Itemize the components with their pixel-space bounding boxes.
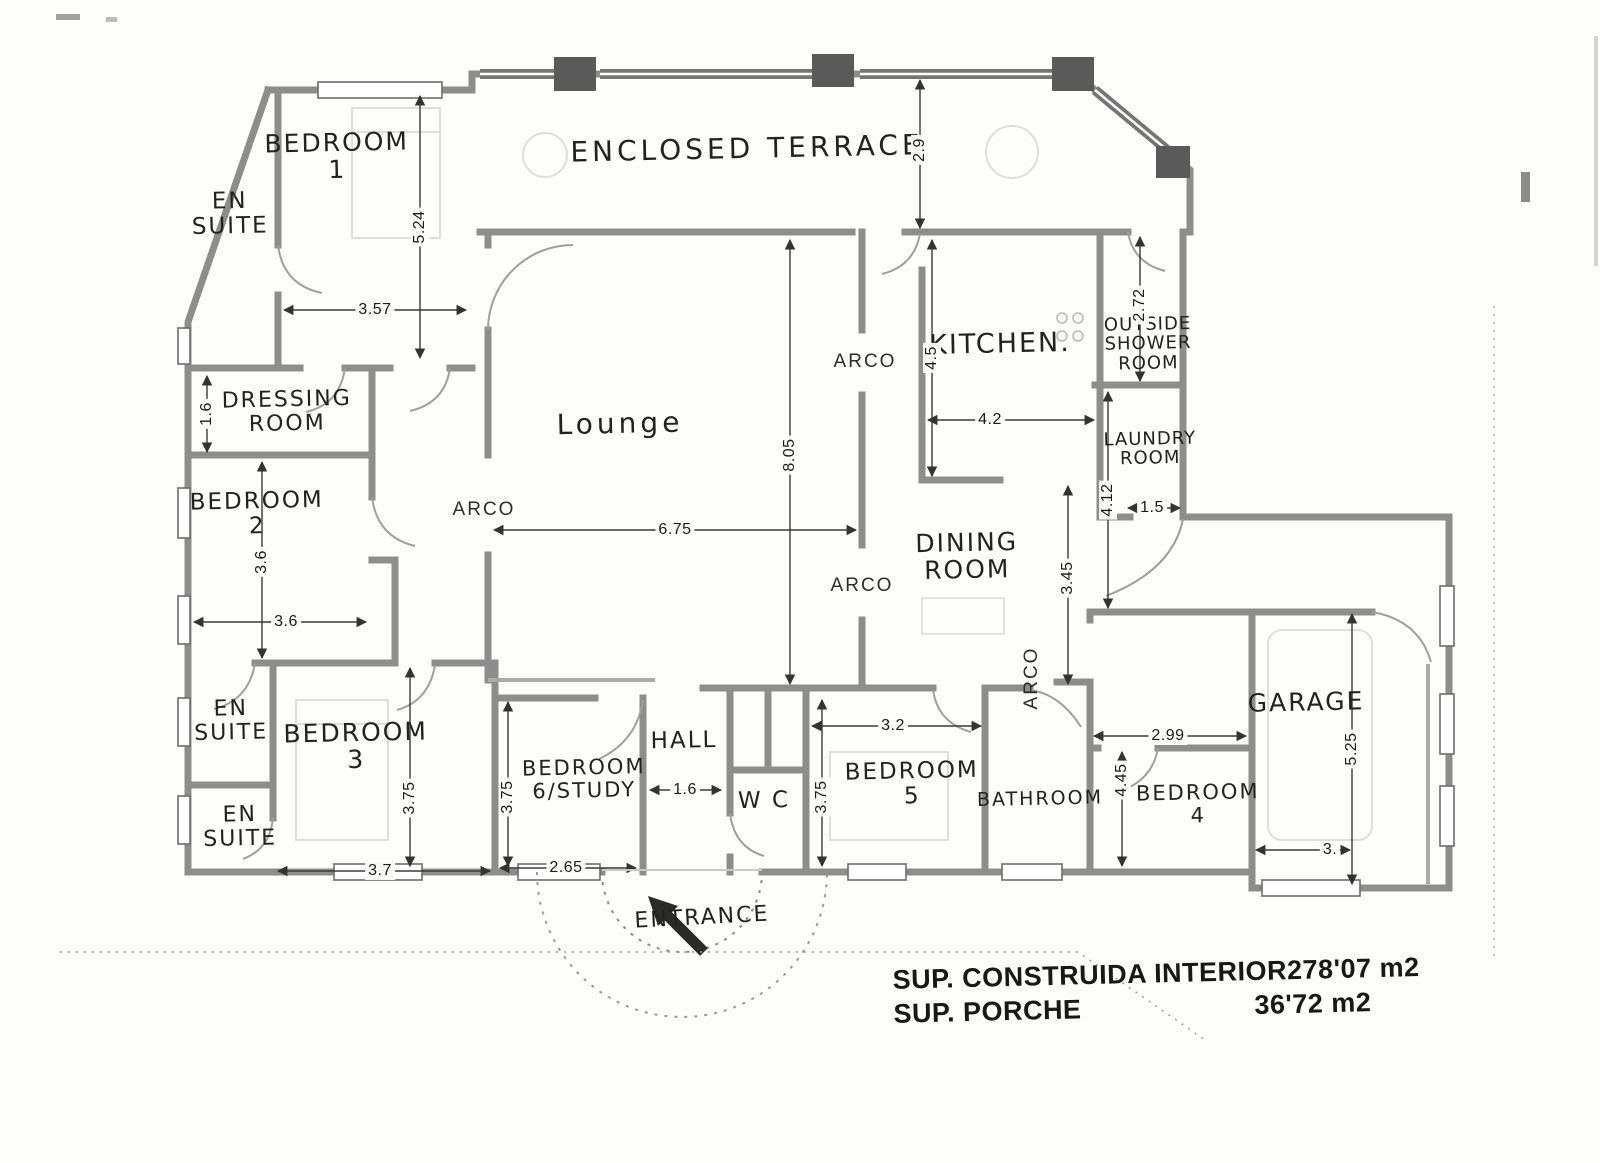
area-summary-value: 36'72 m2 — [1254, 986, 1372, 1023]
room-label-bedroom-4: BEDROOM 4 — [1136, 780, 1261, 828]
room-label-line: BEDROOM — [844, 758, 979, 786]
room-label-line: BEDROOM — [1136, 780, 1260, 805]
room-label-line: ENCLOSED TERRACE — [570, 130, 924, 168]
room-label-line: BEDROOM — [264, 127, 409, 157]
room-label-line: SUITE — [192, 213, 269, 239]
area-summary-value: 278'07 m2 — [1287, 951, 1420, 988]
dim-garage-width: 3. — [1320, 841, 1340, 859]
room-label-bedroom-3: BEDROOM 3 — [283, 717, 429, 774]
dim-kitchen-height: 4.5 — [923, 343, 941, 373]
room-label-line: Lounge — [556, 408, 683, 441]
dim-garage-height: 5.25 — [1343, 729, 1361, 768]
room-label-dressing-room: DRESSING ROOM — [221, 387, 352, 437]
room-label-en-suite-bottom: EN SUITE — [203, 802, 278, 851]
area-summary: SUP. CONSTRUIDA INTERIOR 278'07 m2 SUP. … — [892, 952, 1372, 1031]
dim-laundry-height: 4.12 — [1099, 480, 1117, 519]
room-label-line: 1 — [265, 154, 410, 184]
dim-bedroom3-width: 3.7 — [365, 862, 395, 880]
room-label-line: LAUNDRY — [1103, 429, 1196, 450]
room-label-line: ROOM — [222, 411, 353, 437]
dim-dining-height: 3.45 — [1059, 558, 1077, 597]
dim-bedroom6-width: 2.65 — [546, 859, 585, 877]
room-label-bedroom-6-study: BEDROOM 6/STUDY — [522, 755, 647, 803]
dim-hall-width: 1.6 — [670, 781, 700, 799]
dim-bedroom4-height: 4.45 — [1113, 760, 1131, 799]
room-label-line: GARAGE — [1247, 687, 1364, 716]
arch-label-lounge-dining: ARCO — [831, 575, 894, 597]
arch-label-corridor: ARCO — [453, 499, 516, 521]
area-summary-label: SUP. PORCHE — [893, 993, 1082, 1031]
room-label-en-suite-mid: EN SUITE — [194, 696, 269, 745]
room-label-bedroom-2: BEDROOM 2 — [189, 488, 324, 540]
room-label-line: SHOWER — [1104, 333, 1192, 354]
room-label-bathroom: BATHROOM — [977, 787, 1103, 810]
room-label-line: 6/STUDY — [522, 778, 646, 803]
room-label-bedroom-5: BEDROOM 5 — [844, 758, 979, 810]
arch-label-dining-lobby: ARCO — [1021, 647, 1043, 710]
entrance-porch — [537, 870, 827, 1017]
furniture-sketches — [296, 108, 1372, 840]
room-label-hall: HALL — [650, 728, 717, 754]
room-label-line: EN — [194, 696, 268, 721]
room-label-line: 2 — [190, 513, 325, 541]
room-label-garage: GARAGE — [1247, 687, 1364, 716]
dim-bedroom1-height: 5.24 — [411, 207, 429, 246]
room-label-line: KITCHEN. — [929, 328, 1071, 360]
room-label-enclosed-terrace: ENCLOSED TERRACE — [570, 130, 924, 168]
room-label-line: ROOM — [916, 555, 1019, 584]
room-label-kitchen: KITCHEN. — [929, 328, 1071, 360]
dim-bedroom5-width: 3.2 — [878, 717, 908, 735]
room-label-line: SUITE — [203, 826, 277, 851]
room-label-line: DRESSING — [221, 387, 352, 413]
room-label-wc: W C — [738, 788, 791, 814]
room-label-line: BEDROOM — [283, 717, 428, 747]
room-label-line: EN — [203, 802, 277, 827]
room-label-bedroom-1: BEDROOM 1 — [264, 127, 410, 184]
room-label-line: 4 — [1136, 803, 1260, 828]
dim-dressing-height: 1.6 — [198, 399, 216, 429]
dim-bedroom1-width: 3.57 — [355, 301, 394, 319]
room-label-en-suite-top: EN SUITE — [191, 188, 269, 239]
room-label-lounge: Lounge — [556, 408, 683, 441]
dim-lounge-width: 6.75 — [655, 521, 694, 539]
room-label-line: BEDROOM — [189, 488, 324, 516]
dim-bedroom3-height: 3.75 — [401, 778, 419, 817]
dim-bedroom2-height: 3.6 — [253, 547, 271, 577]
dim-bedroom5-height: 3.75 — [813, 777, 831, 816]
room-label-line: ROOM — [1105, 353, 1193, 374]
room-label-line: SUITE — [194, 720, 268, 745]
dim-terrace-depth: 2.9 — [911, 135, 929, 165]
room-label-line: W C — [738, 788, 791, 814]
room-label-dining-room: DINING ROOM — [915, 528, 1019, 584]
room-label-line: ROOM — [1104, 448, 1197, 469]
dim-bedroom6-height: 3.75 — [499, 777, 517, 816]
room-label-line: HALL — [650, 728, 717, 754]
dim-shower-height: 2.72 — [1131, 285, 1149, 324]
arch-label-kitchen-passage: ARCO — [834, 351, 897, 373]
room-label-line: 3 — [284, 744, 429, 774]
dim-bedroom4-width: 2.99 — [1148, 727, 1187, 745]
room-label-line: EN — [191, 188, 268, 214]
room-label-line: DINING — [915, 528, 1018, 557]
dim-lounge-height: 8.05 — [781, 435, 799, 474]
room-label-laundry-room: LAUNDRY ROOM — [1103, 429, 1196, 470]
room-label-line: BATHROOM — [977, 787, 1103, 810]
dim-kitchen-width: 4.2 — [975, 411, 1005, 429]
dim-laundry-width: 1.5 — [1137, 499, 1167, 517]
floorplan-page: BEDROOM 1 EN SUITE ENCLOSED TERRACE DRES… — [0, 0, 1600, 1163]
room-label-line: 5 — [845, 783, 980, 811]
dim-bedroom2-width: 3.6 — [271, 613, 301, 631]
